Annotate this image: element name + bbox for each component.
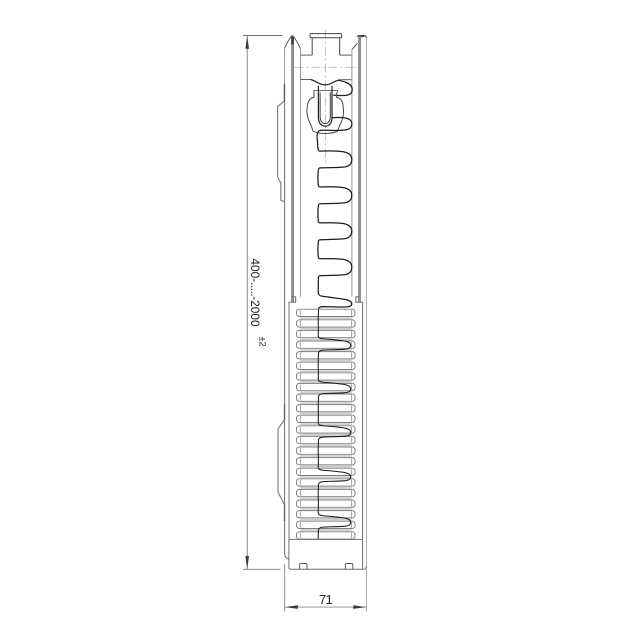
svg-text:±2: ±2 [258,336,268,346]
svg-text:400-.....-2000: 400-.....-2000 [248,258,262,327]
svg-text:71: 71 [319,592,333,607]
